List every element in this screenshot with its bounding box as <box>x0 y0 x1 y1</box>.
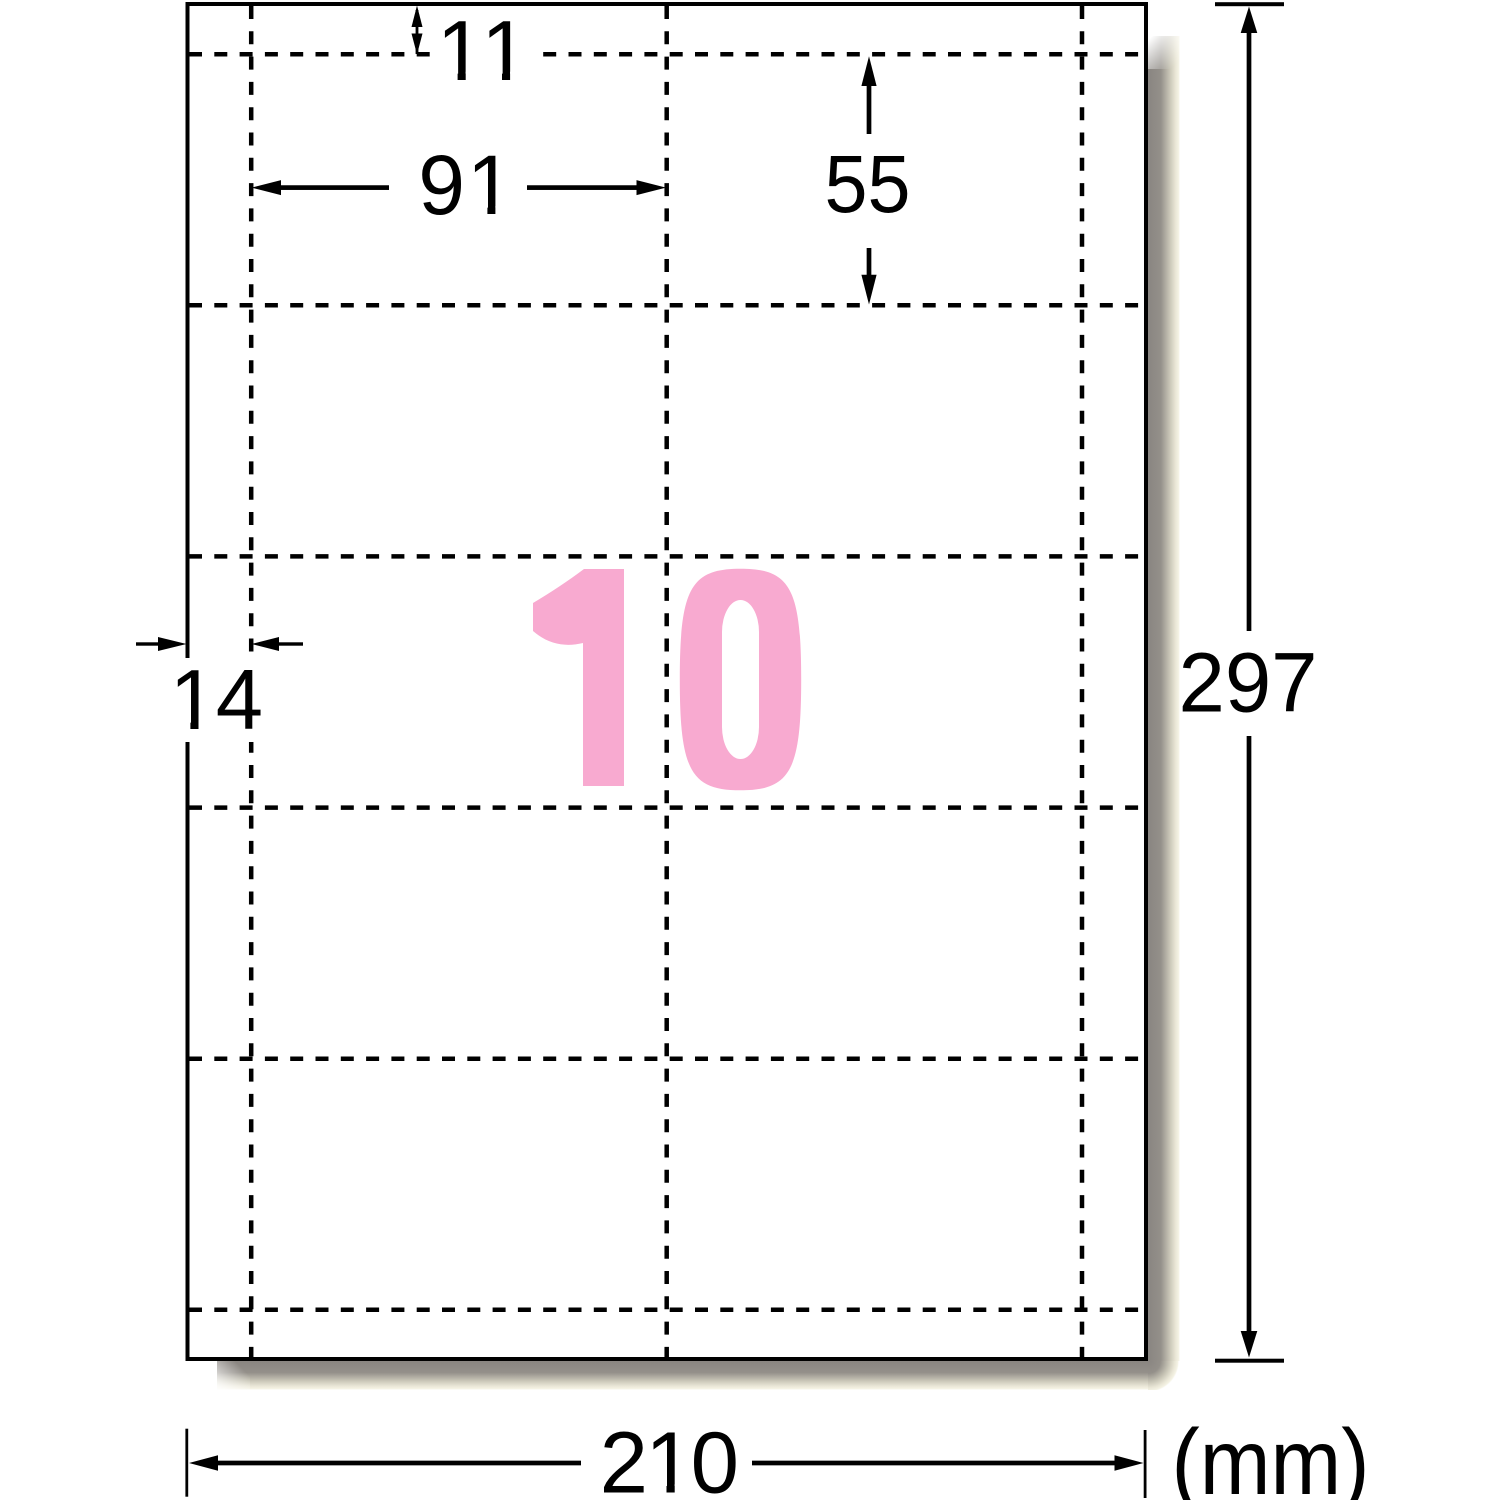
svg-text:4: 4 <box>216 653 263 748</box>
svg-text:0: 0 <box>691 1415 739 1500</box>
svg-text:1: 1 <box>467 138 514 232</box>
svg-text:1: 1 <box>437 4 484 99</box>
svg-text:1: 1 <box>481 4 528 99</box>
svg-text:297: 297 <box>1179 636 1318 730</box>
svg-text:1: 1 <box>170 653 217 748</box>
svg-text:2: 2 <box>600 1415 648 1500</box>
svg-text:(mm): (mm) <box>1172 1410 1370 1500</box>
svg-text:55: 55 <box>825 139 911 230</box>
svg-text:9: 9 <box>418 138 465 232</box>
